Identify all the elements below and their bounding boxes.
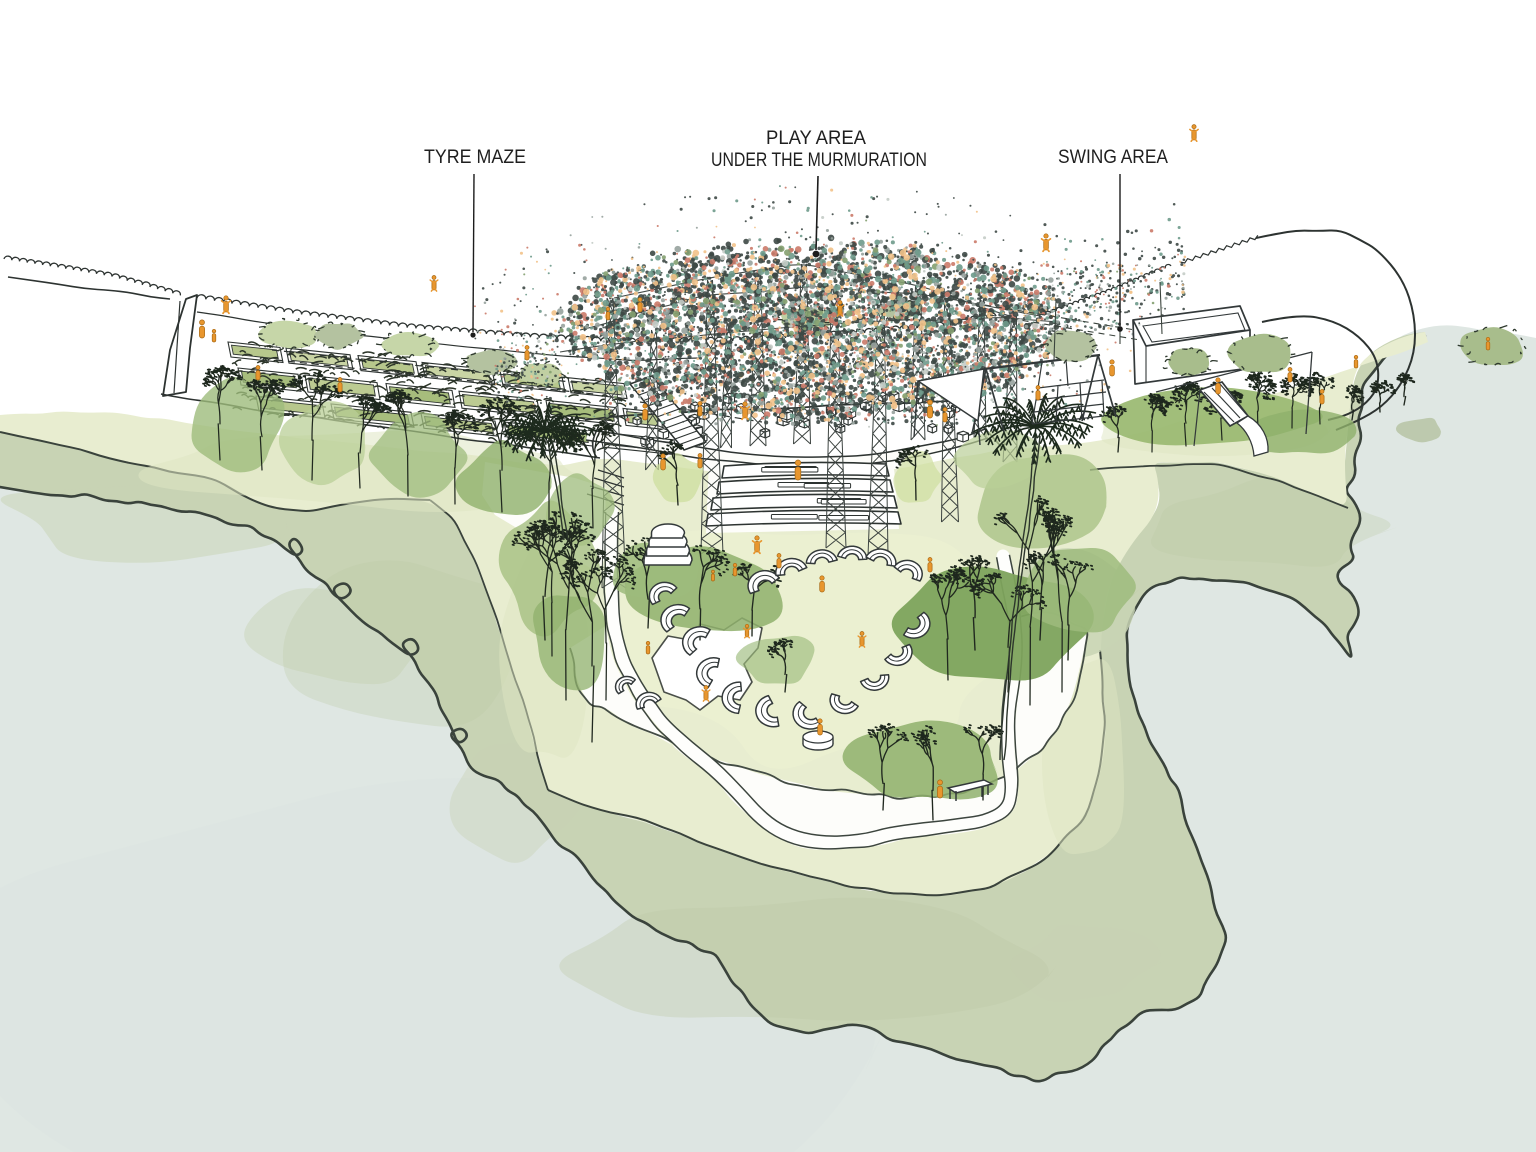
svg-text:PLAY AREA: PLAY AREA — [766, 127, 866, 149]
svg-text:TYRE MAZE: TYRE MAZE — [424, 146, 526, 168]
svg-text:SWING AREA: SWING AREA — [1058, 146, 1168, 168]
svg-text:UNDER THE MURMURATION: UNDER THE MURMURATION — [711, 149, 927, 171]
